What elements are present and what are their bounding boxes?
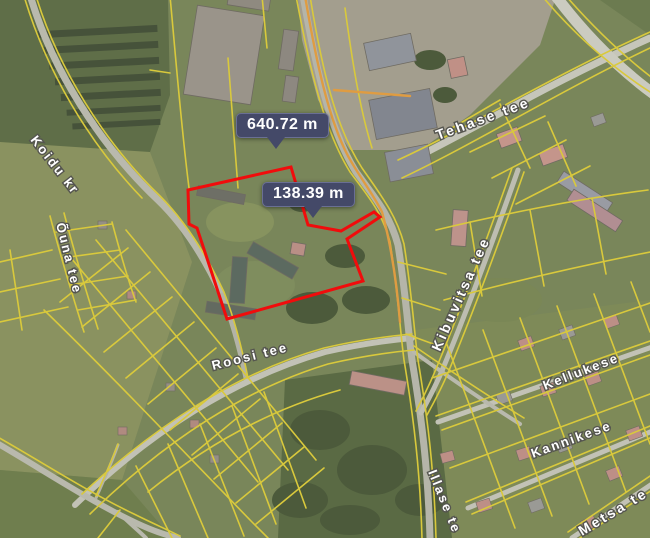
building [451, 210, 468, 247]
map-canvas[interactable]: Koidu kr Õuna tee Tehase tee Roosi tee K… [0, 0, 650, 538]
building [183, 5, 264, 105]
building [229, 257, 247, 304]
house [166, 383, 175, 391]
measurement-value: 138.39 m [273, 185, 344, 202]
measurement-value: 640.72 m [247, 116, 318, 133]
measurement-tooltip-1: 640.72 m [236, 113, 329, 138]
building [290, 242, 306, 256]
grass-patch [206, 202, 274, 242]
tooltip-pointer [304, 206, 322, 218]
tooltip-pointer [267, 137, 285, 149]
house [118, 427, 127, 435]
satellite-layer: Koidu kr Õuna tee Tehase tee Roosi tee K… [0, 0, 650, 538]
measurement-tooltip-2: 138.39 m [262, 182, 355, 207]
building [447, 56, 468, 78]
